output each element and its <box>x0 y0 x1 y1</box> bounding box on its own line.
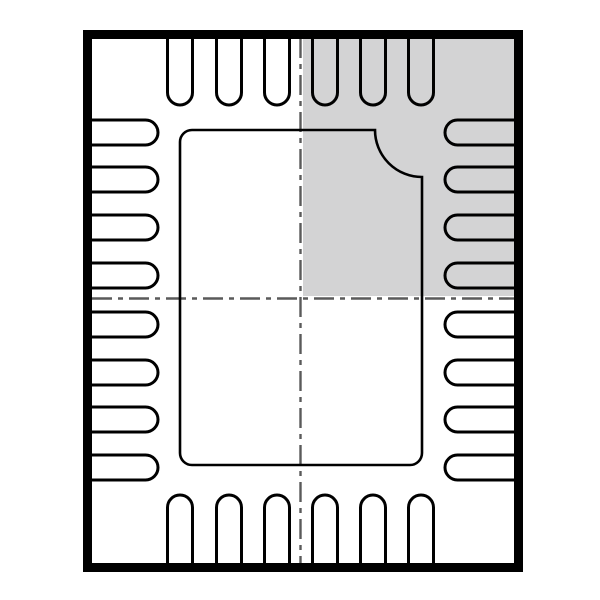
pin-left-6 <box>90 360 158 385</box>
pin-bottom-2 <box>217 495 242 566</box>
pin-bottom-5 <box>361 495 386 566</box>
pin-left-5 <box>90 312 158 337</box>
pin-top-3 <box>265 36 290 105</box>
pin-left-1 <box>90 120 158 145</box>
package-drawing-page <box>0 0 600 600</box>
pin-right-6 <box>445 360 516 385</box>
package-drawing <box>0 0 600 600</box>
pin-left-8 <box>90 455 158 480</box>
pin-left-7 <box>90 407 158 432</box>
pin-right-7 <box>445 407 516 432</box>
pin-bottom-4 <box>313 495 338 566</box>
pin-top-2 <box>217 36 242 105</box>
pin-right-8 <box>445 455 516 480</box>
pin-bottom-6 <box>409 495 434 566</box>
pin-bottom-1 <box>168 495 193 566</box>
pin-left-2 <box>90 167 158 192</box>
pin-left-3 <box>90 215 158 240</box>
pin-top-1 <box>168 36 193 105</box>
pin-left-4 <box>90 263 158 288</box>
pin-bottom-3 <box>265 495 290 566</box>
pin-right-5 <box>445 312 516 337</box>
